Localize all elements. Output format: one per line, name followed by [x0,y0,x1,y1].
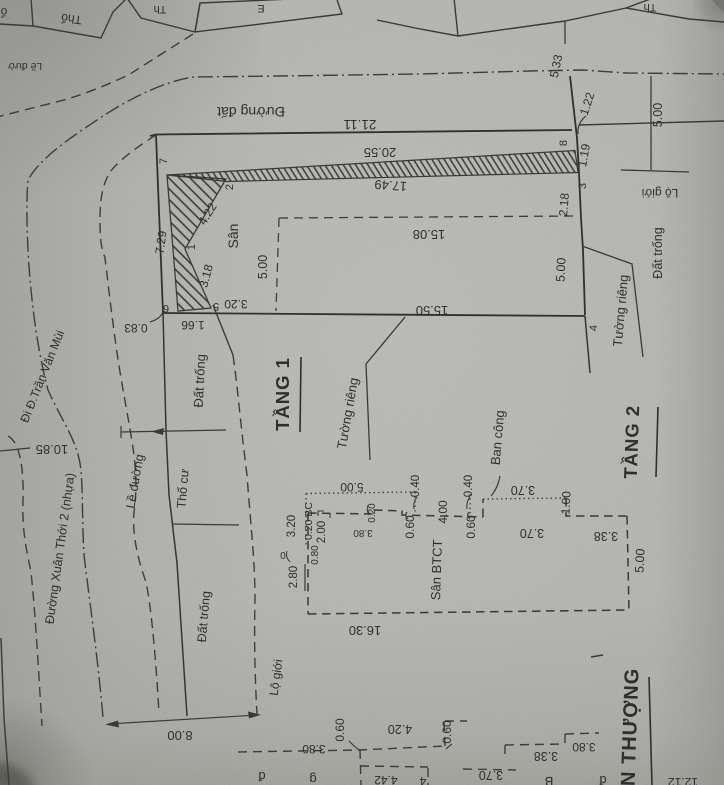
svg-text:4.20: 4.20 [388,722,412,736]
svg-text:g: g [309,772,316,785]
svg-text:0.60: 0.60 [440,720,454,744]
svg-text:20.55: 20.55 [364,145,397,160]
svg-text:3.38: 3.38 [534,749,558,763]
svg-text:Lề đườ: Lề đườ [8,60,42,72]
svg-text:ổ: ổ [0,5,7,19]
svg-text:B: B [545,774,554,785]
svg-text:đ: đ [599,773,607,785]
svg-text:Th: Th [644,1,657,13]
svg-text:3.80: 3.80 [302,742,326,756]
svg-text:4.42: 4.42 [374,773,398,785]
svg-text:3.80: 3.80 [353,527,373,538]
svg-text:7: 7 [158,158,170,164]
svg-text:4.00: 4.00 [436,500,450,524]
svg-text:3.20: 3.20 [286,515,298,537]
svg-text:12.12: 12.12 [668,775,698,785]
svg-text:Th: Th [154,3,167,15]
svg-text:8.00: 8.00 [167,728,192,743]
svg-text:Đường đất: Đường đất [217,104,285,120]
svg-text:0.60: 0.60 [464,515,478,539]
svg-text:1.00: 1.00 [558,490,573,514]
svg-text:16.30: 16.30 [349,623,382,638]
svg-text:4: 4 [419,774,426,785]
svg-text:2: 2 [224,184,236,190]
svg-text:0.20: 0.20 [367,503,378,523]
svg-text:Sân BTCT: Sân BTCT [428,539,445,600]
svg-text:3: 3 [577,183,589,189]
svg-text:Lộ giới: Lộ giới [642,186,679,200]
svg-text:0.60: 0.60 [403,515,417,539]
svg-text:Đất trống: Đất trống [651,227,665,278]
svg-text:15.50: 15.50 [416,303,449,318]
svg-text:E: E [257,2,264,14]
svg-text:17.49: 17.49 [374,177,408,194]
svg-text:2.18: 2.18 [556,192,572,217]
svg-text:15.08: 15.08 [413,227,446,242]
svg-text:3.38: 3.38 [594,529,618,543]
svg-text:TẦNG 1: TẦNG 1 [272,357,293,431]
svg-text:3.20: 3.20 [224,297,248,311]
svg-text:Đất trống: Đất trống [191,354,209,408]
svg-text:5.00: 5.00 [632,548,647,573]
svg-text:8: 8 [558,140,570,146]
svg-text:2.80: 2.80 [288,566,300,588]
svg-text:0.40: 0.40 [410,475,422,497]
svg-text:4: 4 [588,325,600,331]
svg-text:0.80: 0.80 [310,545,321,565]
svg-text:5.00: 5.00 [340,480,364,494]
svg-text:TẦNG 2: TẦNG 2 [620,405,644,480]
svg-text:0.40: 0.40 [463,475,475,497]
svg-text:Thổ: Thổ [60,11,83,27]
svg-text:2.00: 2.00 [316,521,328,543]
svg-text:6: 6 [163,302,169,314]
svg-text:0.83: 0.83 [124,321,148,335]
svg-text:3.70: 3.70 [511,483,535,497]
svg-text:5.00: 5.00 [553,257,568,282]
svg-text:đ: đ [258,769,266,784]
svg-text:0: 0 [280,549,286,560]
svg-text:0.20 BC: 0.20 BC [303,502,315,540]
svg-text:10.85: 10.85 [36,442,69,457]
svg-text:5.00: 5.00 [256,255,270,279]
svg-text:0.60: 0.60 [333,718,347,742]
svg-text:3.70: 3.70 [520,526,544,540]
svg-text:1.66: 1.66 [181,318,205,332]
svg-text:1: 1 [186,244,198,250]
svg-text:21.11: 21.11 [344,117,377,132]
svg-text:3.80: 3.80 [572,740,596,754]
svg-text:3.70: 3.70 [479,768,503,782]
svg-text:Sân: Sân [225,224,241,249]
